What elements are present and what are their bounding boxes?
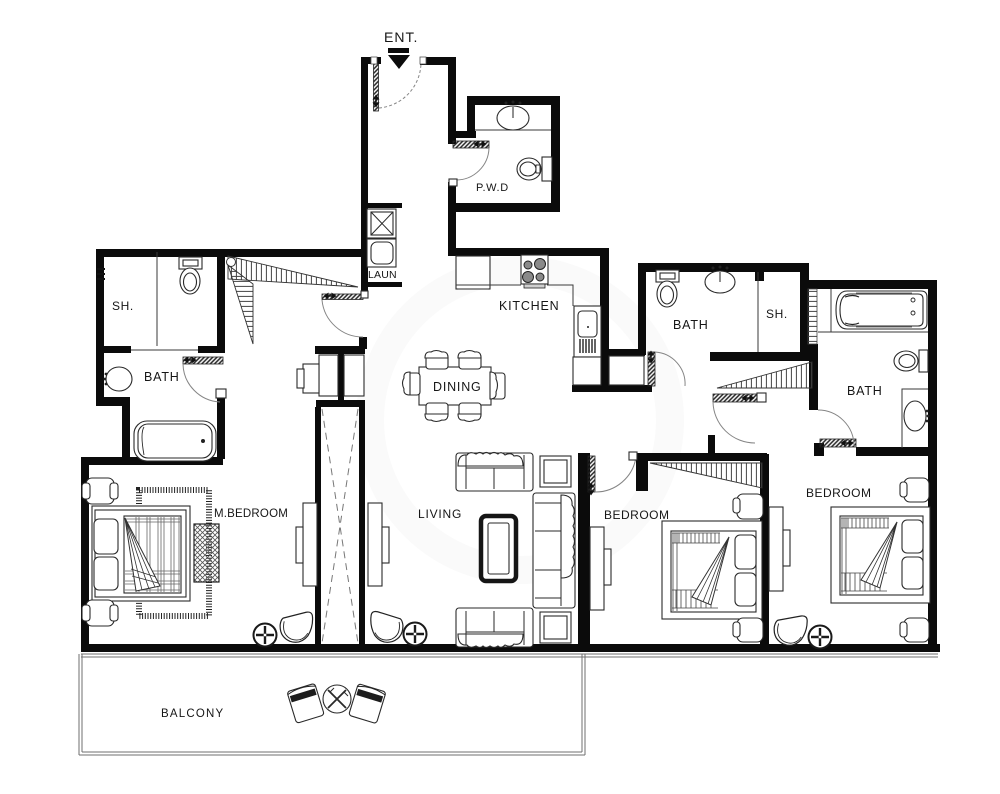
svg-text:BEDROOM: BEDROOM	[604, 508, 670, 522]
svg-text:BALCONY: BALCONY	[161, 708, 224, 720]
svg-text:BEDROOM: BEDROOM	[806, 486, 872, 500]
svg-text:BATH: BATH	[144, 370, 180, 384]
svg-text:LAUN: LAUN	[368, 269, 397, 281]
svg-text:BATH: BATH	[673, 318, 709, 332]
svg-text:SH.: SH.	[112, 299, 134, 313]
svg-text:LIVING: LIVING	[418, 507, 462, 521]
svg-text:M.BEDROOM: M.BEDROOM	[214, 508, 288, 520]
svg-text:SH.: SH.	[766, 307, 788, 321]
svg-text:BATH: BATH	[847, 384, 883, 398]
svg-text:DINING: DINING	[433, 380, 482, 394]
svg-text:P.W.D: P.W.D	[476, 182, 509, 194]
svg-text:KITCHEN: KITCHEN	[499, 299, 559, 313]
svg-text:ENT.: ENT.	[384, 29, 418, 45]
